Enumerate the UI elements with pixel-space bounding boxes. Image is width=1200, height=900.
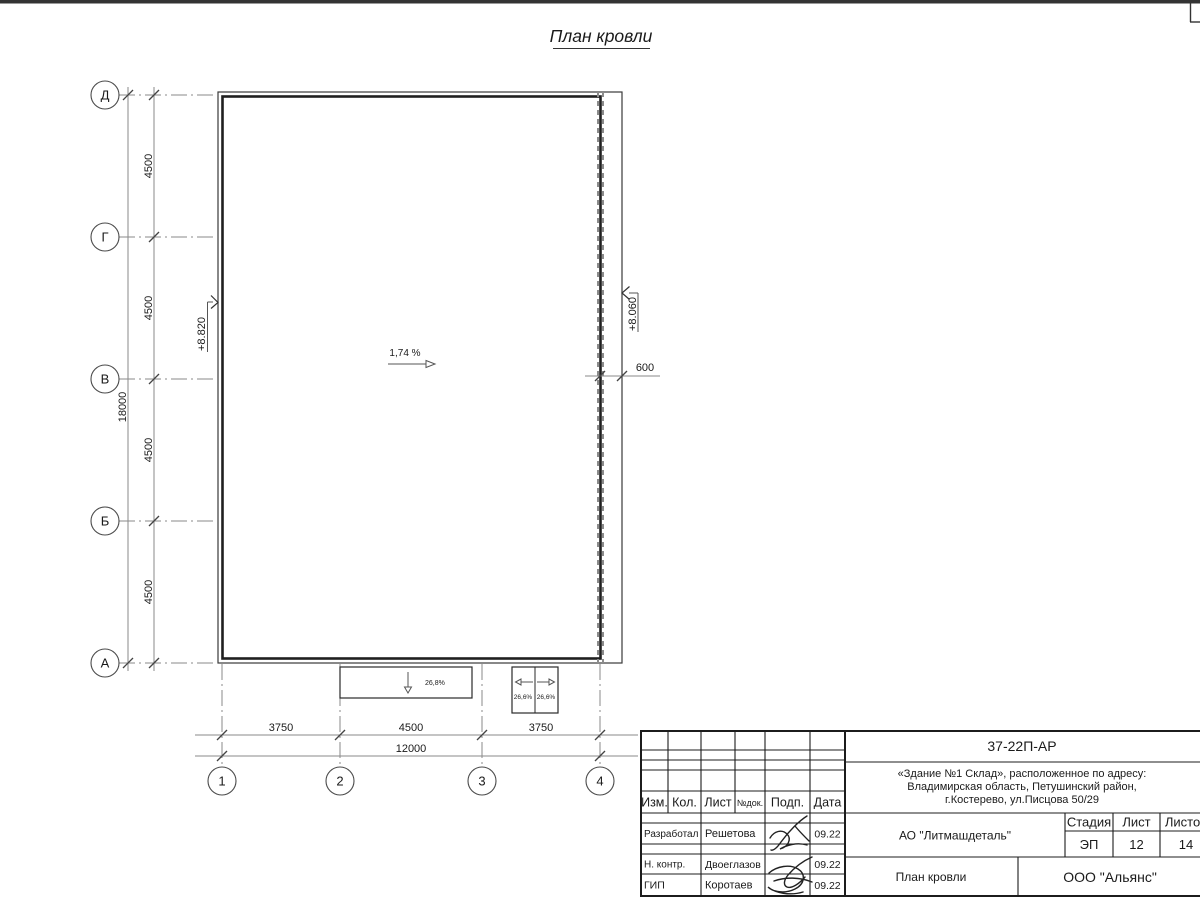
titleblock-headers: Изм. Кол. Лист №док. Подп. Дата — [641, 796, 841, 810]
axis-label: Г — [101, 230, 108, 245]
titleblock-right: 37-22П-АР «Здание №1 Склад», расположенн… — [896, 738, 1200, 885]
building-outer-wall — [218, 92, 622, 663]
canopy-side-slope-right-label: 26,6% — [537, 694, 556, 701]
sheet-value: 12 — [1129, 837, 1143, 852]
axis-label: 3 — [478, 774, 485, 789]
dim-total-label: 12000 — [396, 743, 427, 755]
company-name: ООО "Альянс" — [1063, 869, 1157, 885]
canopy-side: 26,6% 26,6% — [512, 667, 558, 713]
sheet-header: Лист — [1122, 815, 1150, 830]
row-name: Коротаев — [705, 880, 753, 892]
sheets-header: Листов — [1165, 815, 1200, 830]
canopy-front-outline — [340, 667, 472, 698]
elevation-mark-right: +8.060 — [622, 287, 639, 333]
header-doc: №док. — [737, 798, 763, 808]
header-list: Лист — [704, 796, 731, 810]
elevation-left-label: +8.820 — [196, 317, 208, 351]
sheet-name: План кровли — [896, 870, 967, 884]
header-sign: Подп. — [771, 796, 804, 810]
elevation-right-label: +8.060 — [627, 297, 639, 331]
header-kol: Кол. — [672, 796, 697, 810]
object-address-line: Владимирская область, Петушинский район, — [907, 781, 1136, 793]
titleblock-signature-rows: Разработал Решетова 09.22 Н. контр. Двое… — [644, 816, 841, 894]
elevation-mark-left: +8.820 — [196, 296, 218, 353]
slope-arrowhead-icon — [426, 361, 435, 368]
row-role: Разработал — [644, 828, 699, 840]
sheet-edge-marks — [0, 0, 1200, 22]
drawing-title: План кровли — [550, 26, 653, 49]
header-date: Дата — [814, 796, 842, 810]
dim-label: 4500 — [143, 580, 155, 604]
axis-label: 4 — [596, 774, 603, 789]
titleblock: Изм. Кол. Лист №док. Подп. Дата Разработ… — [640, 731, 1200, 896]
row-date: 09.22 — [814, 829, 840, 841]
dim-label: 3750 — [269, 722, 293, 734]
slope-annotation: 1,74 % — [388, 348, 435, 368]
row-date: 09.22 — [814, 859, 840, 871]
roof-plan-canvas: План кровли Д Г В Б А 1 2 — [0, 0, 1200, 900]
axis-label: Д — [101, 88, 110, 103]
dim-label: 4500 — [143, 154, 155, 178]
axis-label: 1 — [218, 774, 225, 789]
row-date: 09.22 — [814, 880, 840, 892]
dim-label: 4500 — [143, 438, 155, 462]
doc-number: 37-22П-АР — [987, 738, 1056, 754]
dim-label-600: 600 — [636, 362, 654, 374]
header-izm: Изм. — [641, 796, 668, 810]
signature-scribble — [768, 857, 812, 894]
dim-label: 3750 — [529, 722, 553, 734]
row-role: Н. контр. — [644, 860, 685, 871]
row-name: Двоеглазов — [705, 859, 761, 871]
row-name: Решетова — [705, 828, 756, 840]
canopy-front: 26,8% — [340, 667, 472, 698]
drawing-sheet: План кровли Д Г В Б А 1 2 — [0, 0, 1200, 900]
top-edge-strip — [0, 0, 1200, 4]
axis-label: Б — [101, 514, 110, 529]
bottom-dimensions: 3750 4500 3750 12000 — [195, 722, 638, 761]
canopy-side-slope-left-label: 26,6% — [514, 694, 533, 701]
building-outline — [218, 92, 622, 663]
axis-label: А — [101, 656, 110, 671]
axis-label: 2 — [336, 774, 343, 789]
roof-slab-outline — [223, 97, 601, 659]
sheets-value: 14 — [1179, 837, 1193, 852]
dim-total-label: 18000 — [117, 392, 129, 423]
row-role: ГИП — [644, 880, 665, 892]
dim-label: 4500 — [143, 296, 155, 320]
object-address-line: г.Костерево, ул.Писцова 50/29 — [945, 794, 1099, 806]
axis-label: В — [101, 372, 110, 387]
slope-label: 1,74 % — [389, 348, 420, 359]
object-address-line: «Здание №1 Склад», расположенное по адре… — [898, 768, 1147, 780]
stage-value: ЭП — [1080, 837, 1099, 852]
client-name: АО "Литмашдеталь" — [899, 829, 1011, 843]
canopy-front-slope-label: 26,8% — [425, 680, 445, 687]
page-title: План кровли — [550, 26, 653, 46]
signature-scribble — [770, 816, 809, 850]
stage-header: Стадия — [1067, 815, 1111, 830]
dim-label: 4500 — [399, 722, 423, 734]
